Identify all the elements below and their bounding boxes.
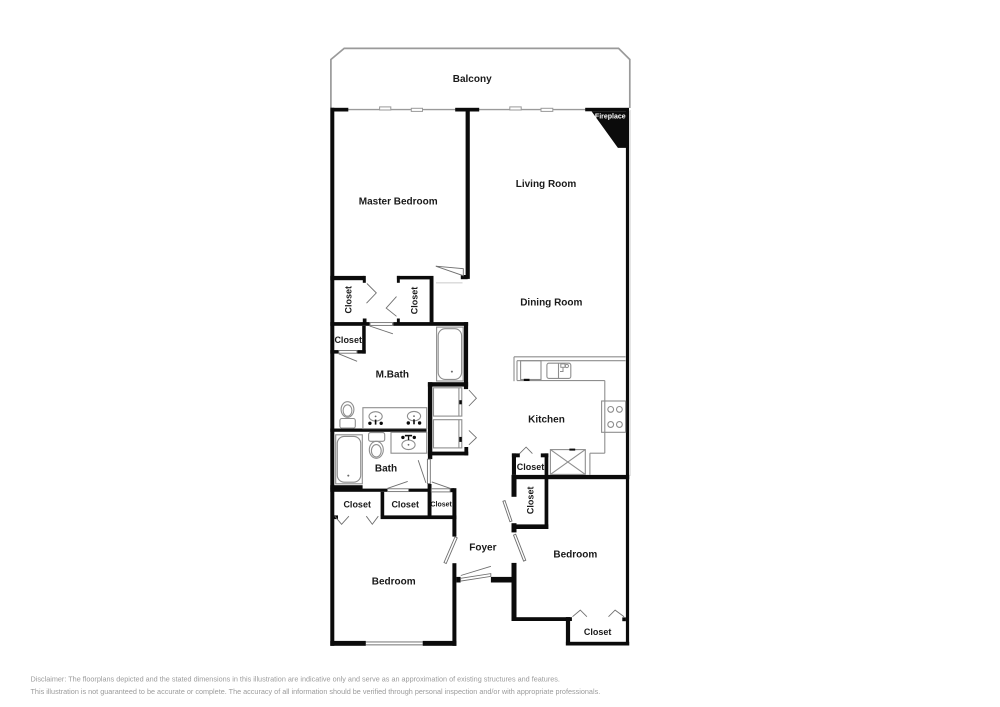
svg-text:Dining Room: Dining Room: [520, 297, 582, 308]
svg-text:Closet: Closet: [334, 335, 362, 345]
svg-text:Closet: Closet: [526, 487, 536, 515]
svg-text:Closet: Closet: [584, 627, 612, 637]
svg-text:This illustration is not guara: This illustration is not guaranteed to b…: [31, 687, 601, 696]
svg-text:Living Room: Living Room: [516, 179, 577, 190]
svg-text:Fireplace: Fireplace: [595, 113, 626, 120]
svg-text:Balcony: Balcony: [453, 74, 492, 85]
svg-text:Closet: Closet: [517, 462, 545, 472]
svg-text:Closet: Closet: [343, 499, 371, 509]
svg-text:Closet: Closet: [409, 287, 419, 315]
svg-text:Disclaimer: The floorplans dep: Disclaimer: The floorplans depicted and …: [31, 674, 560, 683]
svg-text:Closet: Closet: [430, 502, 452, 509]
svg-text:Kitchen: Kitchen: [528, 414, 565, 425]
svg-text:M.Bath: M.Bath: [376, 369, 409, 380]
svg-text:Closet: Closet: [391, 499, 419, 509]
svg-text:Foyer: Foyer: [469, 543, 496, 554]
svg-text:Closet: Closet: [343, 286, 353, 314]
svg-text:Bedroom: Bedroom: [553, 549, 597, 560]
svg-text:Bath: Bath: [375, 463, 397, 474]
svg-text:Bedroom: Bedroom: [372, 577, 416, 588]
svg-text:Master Bedroom: Master Bedroom: [359, 196, 438, 207]
